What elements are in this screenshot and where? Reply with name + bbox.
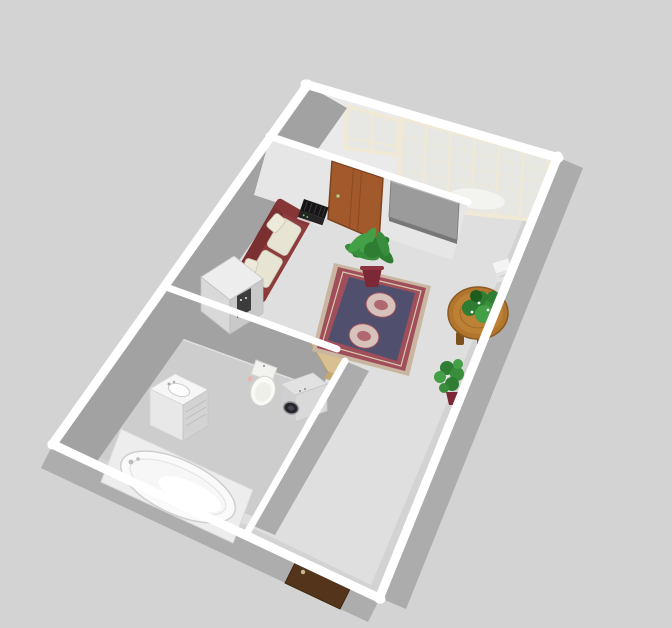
bathtub-faucet	[136, 457, 140, 461]
viewport-3d[interactable]	[0, 0, 672, 628]
table-plant-leaves	[470, 290, 482, 302]
entry-door-handle	[301, 570, 305, 574]
fern-leaves	[439, 383, 449, 393]
table-plant-flower	[478, 302, 481, 305]
table-plant-flower	[471, 311, 474, 314]
palm-center	[364, 242, 380, 258]
refrigerator-control	[240, 299, 242, 301]
toilet-handle	[248, 377, 253, 382]
sink-faucet	[173, 381, 175, 383]
washer-control	[299, 390, 301, 392]
floorplan-3d-stage	[0, 0, 672, 628]
door-handle	[336, 194, 340, 198]
washer-control	[304, 388, 306, 390]
fern-leaves	[453, 359, 463, 369]
sink-faucet	[168, 383, 171, 386]
fern-leaves	[434, 371, 446, 383]
refrigerator-control	[245, 297, 247, 299]
table-plant-flower	[487, 309, 490, 312]
toilet-button	[263, 365, 265, 367]
palm-pot-rim	[360, 266, 384, 270]
bathtub-faucet	[129, 460, 134, 465]
